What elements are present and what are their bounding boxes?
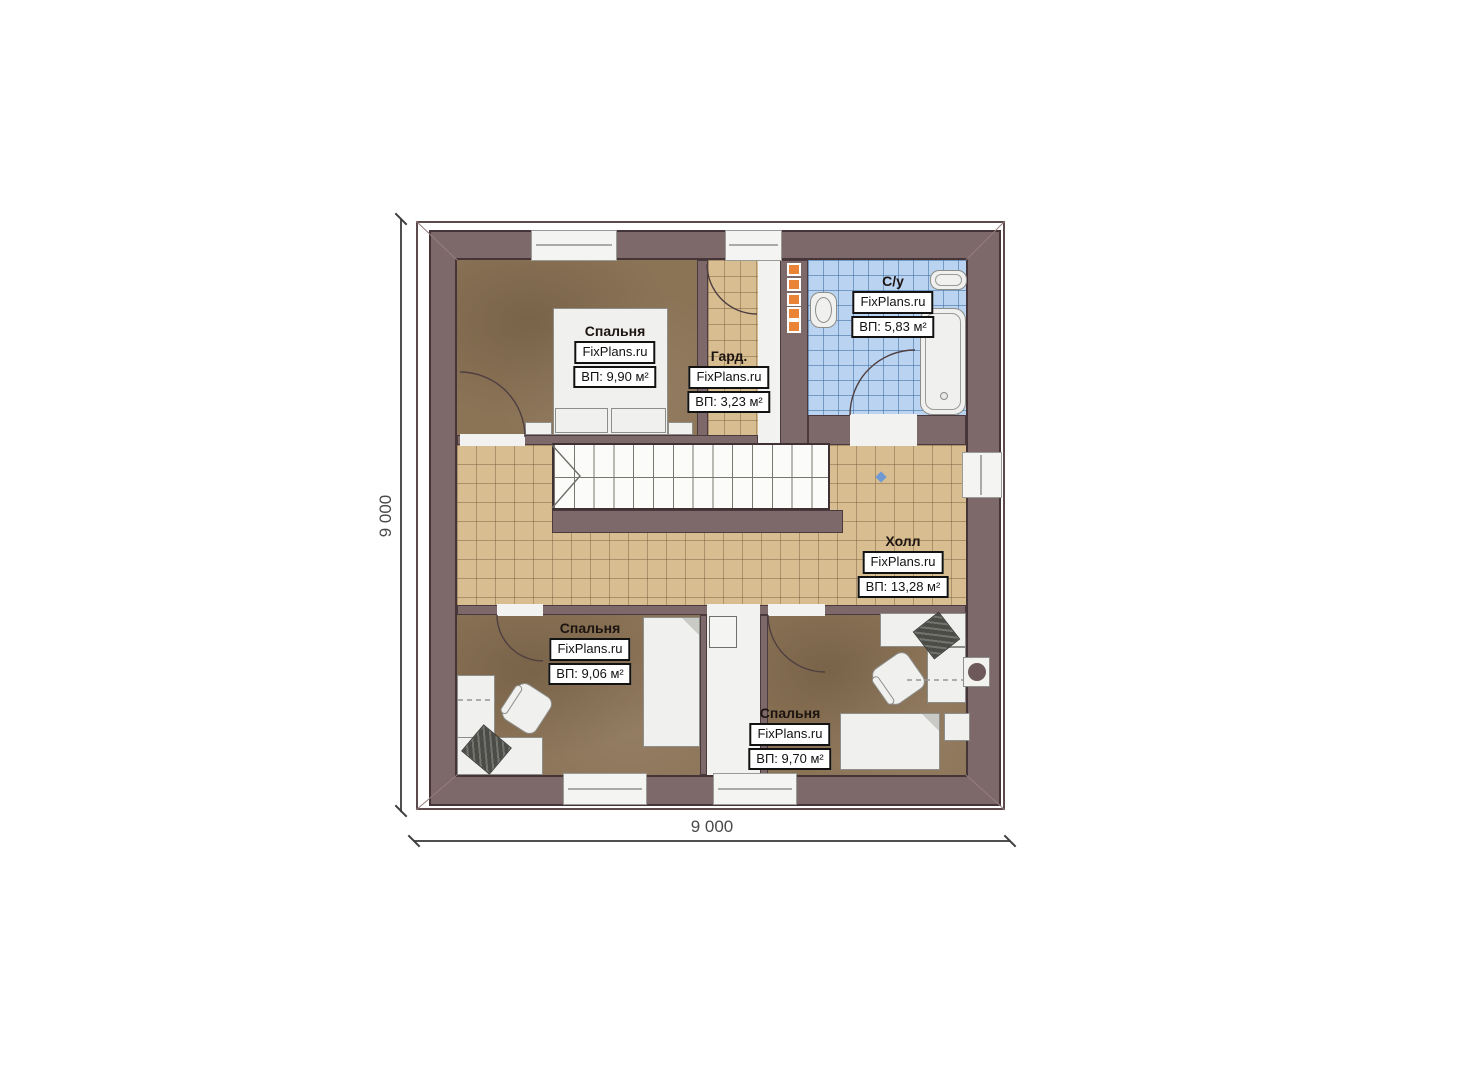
window-glazing	[536, 244, 612, 246]
room-name: Спальня	[560, 621, 620, 636]
window-top-left	[531, 230, 617, 261]
towel-rail-segment	[787, 320, 801, 333]
brand-box: FixPlans.ru	[549, 638, 630, 660]
brand-box: FixPlans.ru	[749, 723, 830, 745]
area-box: ВП: 9,06 м²	[548, 663, 631, 685]
window-bottom-right	[713, 773, 797, 805]
room-label-bathroom: С/у FixPlans.ru ВП: 5,83 м²	[851, 274, 934, 338]
room-name: Спальня	[760, 706, 820, 721]
brand-box: FixPlans.ru	[852, 291, 933, 313]
toilet-bowl	[935, 274, 962, 286]
page: 9 000 9 000	[0, 0, 1473, 1080]
vent-duct	[963, 657, 990, 687]
room-name: Спальня	[585, 324, 645, 339]
closet	[709, 616, 737, 648]
nightstand	[668, 422, 693, 435]
sink-basin	[815, 297, 832, 323]
towel-rail-segment	[787, 278, 801, 291]
dimension-label-width: 9 000	[662, 817, 762, 837]
brand-box: FixPlans.ru	[688, 366, 769, 388]
area-box: ВП: 3,23 м²	[687, 391, 770, 413]
stairs-center-line	[554, 477, 828, 478]
window-hall-right	[962, 452, 1002, 498]
room-name: Гард.	[711, 349, 748, 364]
dimension-line-horizontal	[414, 840, 1010, 842]
door-opening-bedroom-right	[768, 604, 825, 616]
dimension-label-height: 9 000	[376, 486, 396, 546]
wall-bedroom-left-closet	[700, 615, 707, 775]
bathtub-drain	[940, 392, 948, 400]
door-opening-bedroom-left	[497, 604, 543, 616]
area-box: ВП: 13,28 м²	[858, 576, 949, 598]
room-label-bedroom-left: Спальня FixPlans.ru ВП: 9,06 м²	[548, 621, 631, 685]
room-label-bedroom-right: Спальня FixPlans.ru ВП: 9,70 м²	[748, 706, 831, 770]
window-glazing	[729, 244, 779, 246]
blanket-fold	[922, 714, 939, 731]
pillow	[555, 408, 608, 433]
dimension-line-vertical	[400, 219, 402, 812]
brand-box: FixPlans.ru	[574, 341, 655, 363]
bed	[643, 617, 700, 747]
room-name: Холл	[885, 534, 920, 549]
towel-rail-segment	[787, 307, 801, 320]
stairs	[552, 443, 830, 510]
pillow	[611, 408, 666, 433]
window-top-right	[725, 230, 782, 261]
nightstand	[944, 713, 970, 741]
door-opening-bathroom	[850, 414, 917, 446]
sink	[810, 292, 837, 328]
blanket-fold	[682, 618, 699, 635]
towel-rail-segment	[787, 263, 801, 276]
room-label-wardrobe: Гард. FixPlans.ru ВП: 3,23 м²	[687, 349, 770, 413]
room-label-hall: Холл FixPlans.ru ВП: 13,28 м²	[858, 534, 949, 598]
area-box: ВП: 9,70 м²	[748, 748, 831, 770]
vent-duct-pipe	[968, 663, 986, 681]
door-opening-bedroom-top	[460, 434, 525, 446]
window-glazing	[718, 788, 792, 790]
room-label-bedroom-top: Спальня FixPlans.ru ВП: 9,90 м²	[573, 324, 656, 388]
opening-closet-strip	[707, 604, 760, 616]
floor-plan: Спальня FixPlans.ru ВП: 9,90 м² Гард. Fi…	[413, 218, 1009, 814]
nightstand	[525, 422, 552, 435]
room-name: С/у	[882, 274, 904, 289]
area-box: ВП: 9,90 м²	[573, 366, 656, 388]
window-glazing	[980, 455, 982, 495]
window-bottom-left	[563, 773, 647, 805]
toilet	[930, 270, 967, 290]
window-glazing	[568, 788, 642, 790]
towel-rail-segment	[787, 293, 801, 306]
brand-box: FixPlans.ru	[862, 551, 943, 573]
area-box: ВП: 5,83 м²	[851, 316, 934, 338]
stairs-railing-wall	[552, 510, 843, 533]
